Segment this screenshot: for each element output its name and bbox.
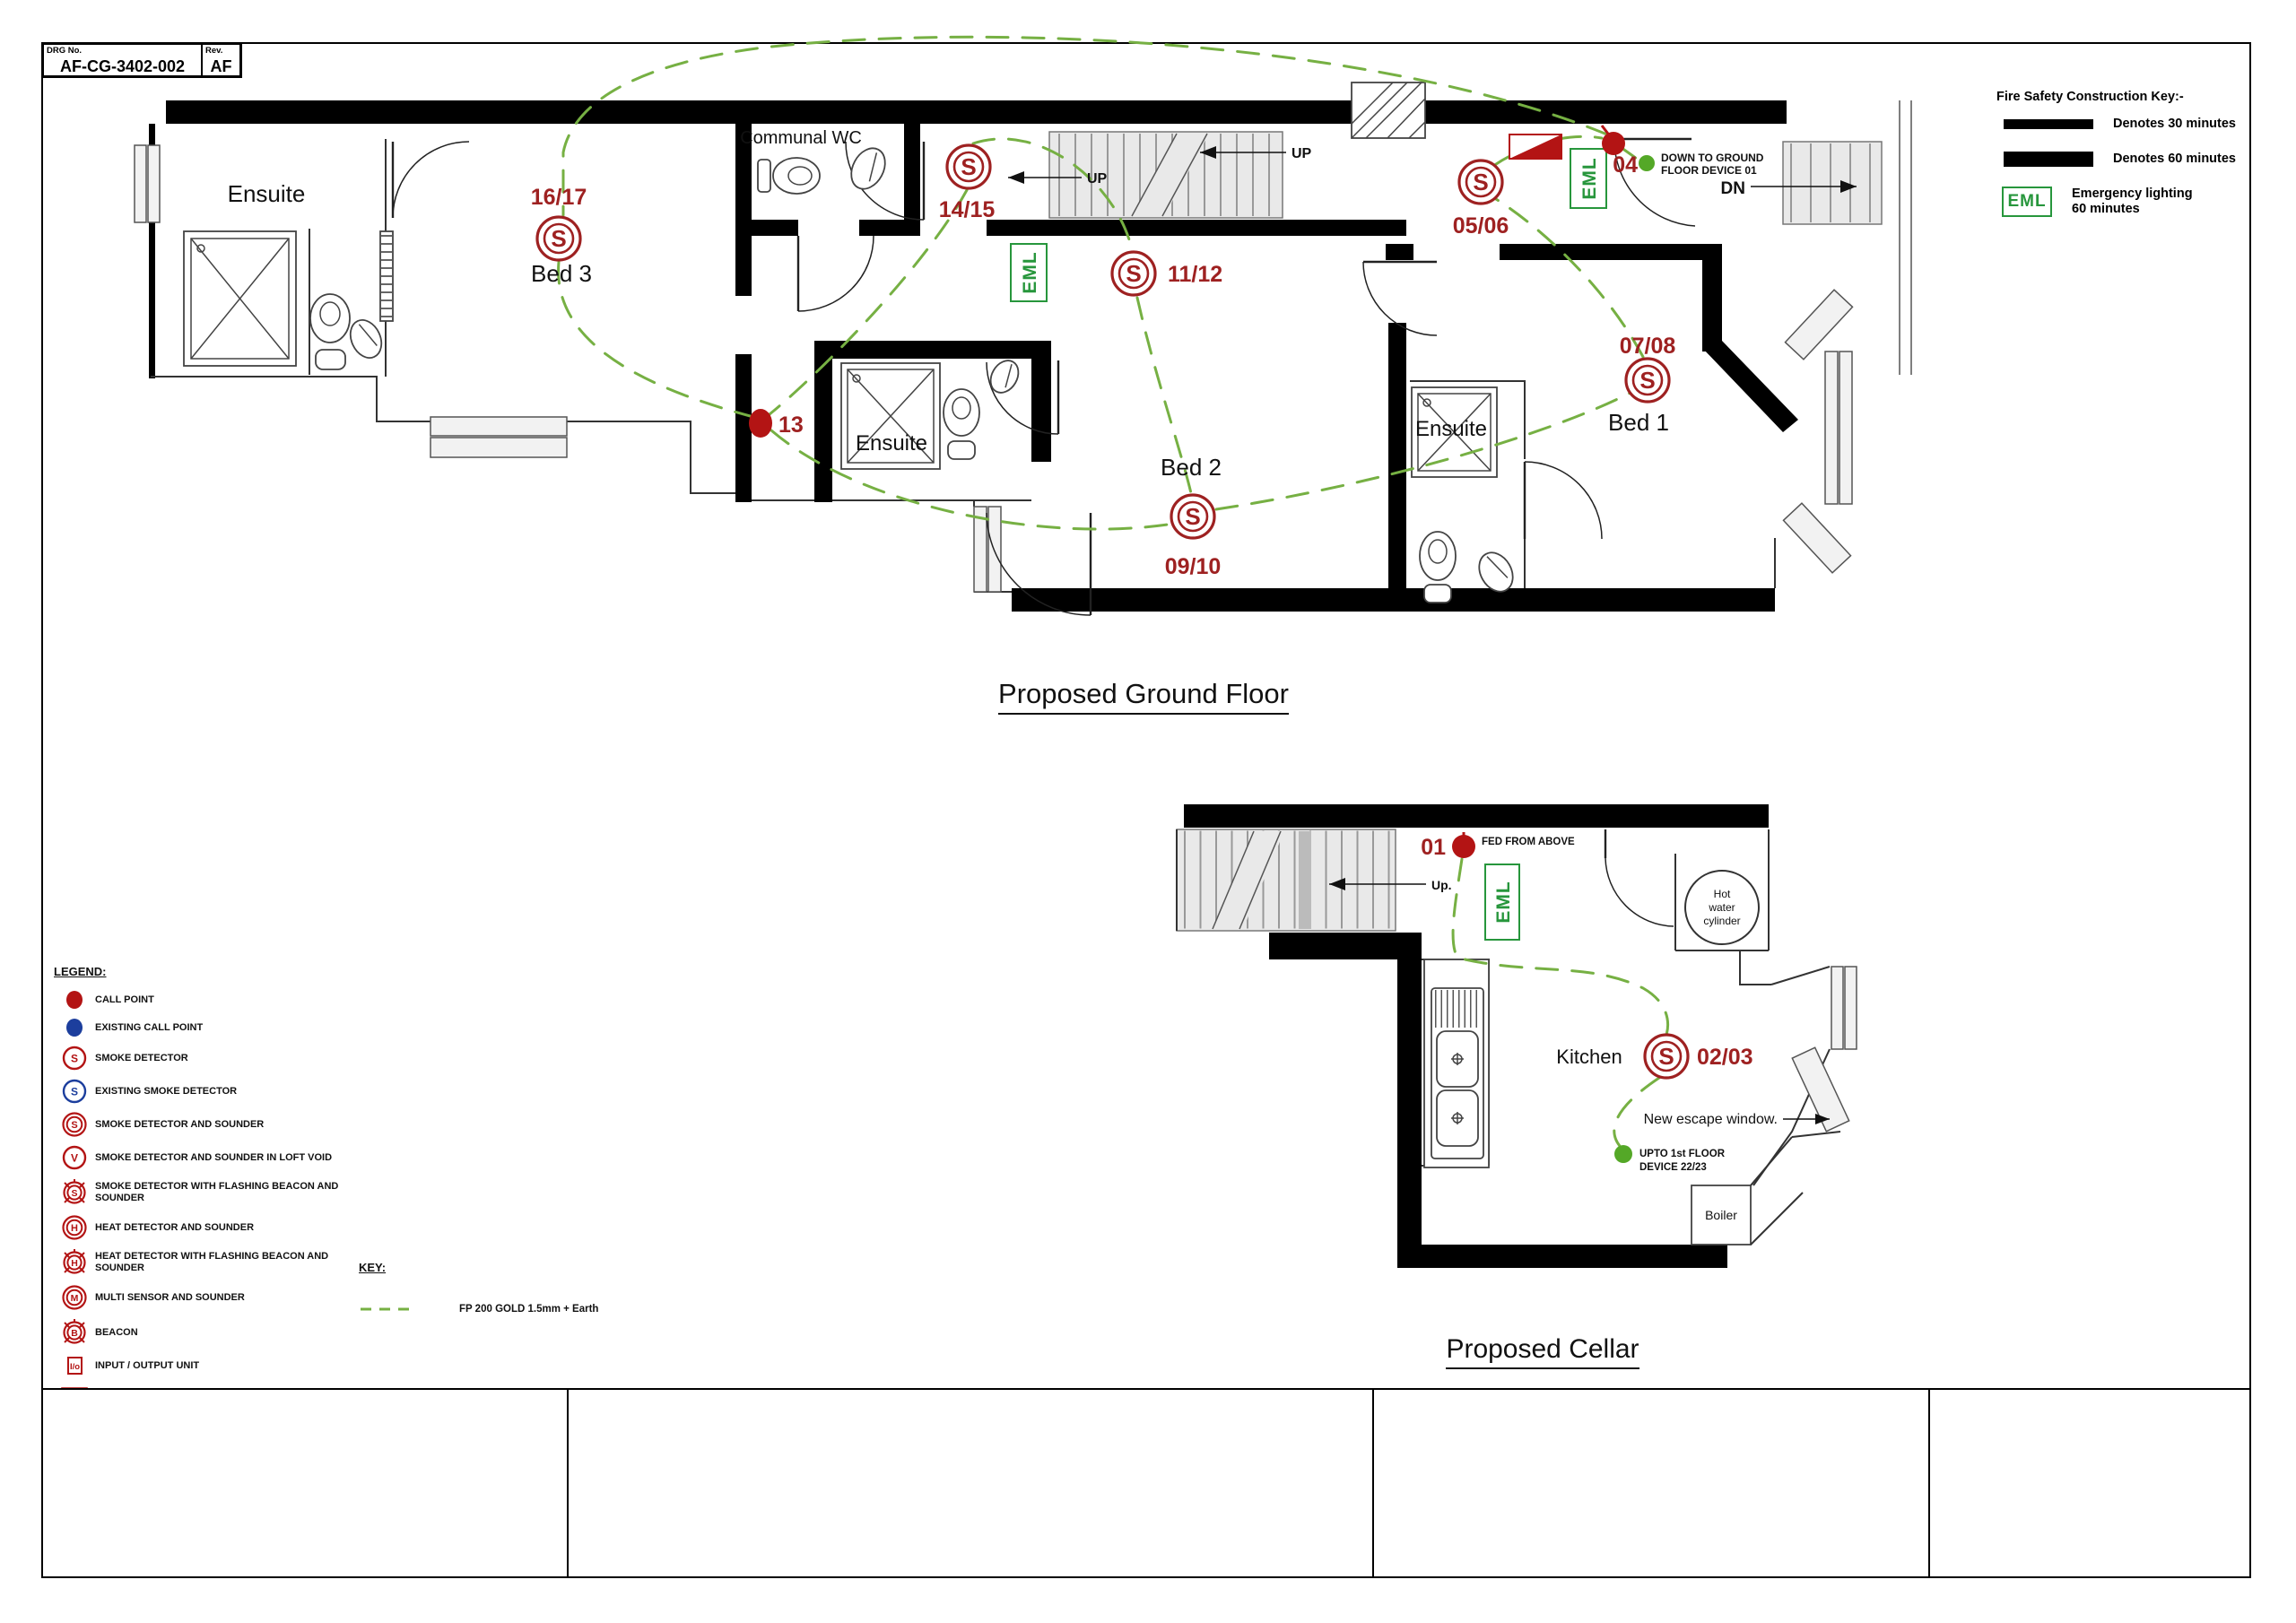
smoke-detector-sounder-icon: S [54, 1111, 95, 1138]
basin-communal-wc [845, 143, 892, 195]
svg-text:S: S [71, 1188, 77, 1199]
basin-ensuite-tl [344, 315, 387, 362]
cellar-bay-window [1792, 967, 1857, 1132]
cable-dash-icon [359, 1301, 414, 1317]
label-02-03: 02/03 [1697, 1045, 1753, 1070]
hot-water-line1: Hot [1714, 888, 1731, 900]
eml-sign-hall-text: EML [1020, 251, 1040, 293]
hot-water-line2: water [1708, 901, 1735, 914]
smoke-detector-02-03: S [1645, 1035, 1688, 1078]
room-bed3: Bed 3 [531, 260, 592, 287]
legend-row: CALL POINT [54, 989, 377, 1011]
legend-row: H HEAT DETECTOR AND SOUNDER [54, 1214, 377, 1241]
cellar-stairs [1177, 829, 1396, 931]
external-stairs-down [1783, 142, 1882, 224]
cable-key-row: FP 200 GOLD 1.5mm + Earth [359, 1301, 598, 1317]
up-text-2: UP [1291, 146, 1312, 161]
smoke-detector-07-08: S [1626, 359, 1669, 402]
svg-text:S: S [71, 1086, 78, 1098]
heat-detector-sounder-icon: H [54, 1214, 95, 1241]
toilet-ensuite-right [1420, 532, 1456, 603]
cellar-plan: Up. [1177, 804, 1857, 1268]
legend: LEGEND: CALL POINT EXISTING CALL POINT S… [54, 965, 377, 1439]
drawing-sheet: DRG No. AF-CG-3402-002 Rev. AF Fire Safe… [0, 0, 2296, 1623]
svg-text:S: S [1658, 1043, 1674, 1070]
cable-key-heading: KEY: [359, 1261, 598, 1274]
riser-dot-upto-first-floor [1614, 1145, 1632, 1163]
legend-row: S EXISTING SMOKE DETECTOR [54, 1078, 377, 1105]
down-note-line1: DOWN TO GROUND [1661, 152, 1764, 164]
call-point-04 [1602, 126, 1625, 155]
dn-text: DN [1721, 179, 1745, 198]
window-bed3 [430, 417, 567, 457]
title-block [41, 1388, 2251, 1578]
svg-text:H: H [71, 1223, 78, 1234]
kitchen-sink-unit [1424, 959, 1489, 1167]
legend-row: S SMOKE DETECTOR [54, 1045, 377, 1072]
title-block-divider [1372, 1390, 1374, 1576]
cable-key-label: FP 200 GOLD 1.5mm + Earth [459, 1304, 598, 1315]
legend-row: S SMOKE DETECTOR AND SOUNDER [54, 1111, 377, 1138]
riser-dot-down-to-ground [1639, 155, 1655, 171]
svg-text:S: S [1126, 260, 1141, 287]
room-bed2: Bed 2 [1161, 454, 1222, 481]
legend-row: B BEACON [54, 1317, 377, 1348]
upto-note-line1: UPTO 1st FLOOR [1639, 1149, 1726, 1159]
escape-window-text: New escape window. [1644, 1112, 1778, 1127]
label-07-08: 07/08 [1620, 334, 1676, 359]
legend-row: I/o INPUT / OUTPUT UNIT [54, 1354, 377, 1377]
room-ensuite-tl: Ensuite [228, 180, 306, 207]
title-block-divider [567, 1390, 569, 1576]
eml-sign-cellar: EML [1485, 864, 1519, 940]
label-05-06: 05/06 [1453, 213, 1509, 239]
smoke-detector-flashing-icon: S [54, 1177, 95, 1208]
bay-window-right [1783, 290, 1852, 573]
eml-sign-hall: EML [1011, 244, 1047, 301]
label-01: 01 [1421, 835, 1446, 860]
label-13: 13 [778, 412, 804, 438]
eml-sign-corridor-text: EML [1579, 157, 1600, 199]
heat-detector-flashing-icon: H [54, 1247, 95, 1278]
basin-ensuite-mid [985, 356, 1023, 398]
toilet-ensuite-tl [310, 294, 350, 369]
legend-row: M MULTI SENSOR AND SOUNDER [54, 1284, 377, 1311]
toilet-communal-wc [758, 158, 820, 194]
label-11-12: 11/12 [1168, 262, 1222, 287]
svg-text:S: S [1185, 503, 1200, 530]
eml-sign-cellar-text: EML [1493, 881, 1514, 923]
svg-text:S: S [961, 153, 976, 180]
call-point-13 [749, 409, 772, 438]
existing-call-point-icon [54, 1017, 95, 1038]
multi-sensor-icon: M [54, 1284, 95, 1311]
legend-row: H HEAT DETECTOR WITH FLASHING BEACON AND… [54, 1247, 377, 1278]
existing-smoke-detector-icon: S [54, 1078, 95, 1105]
stair-hatch-block [1352, 82, 1425, 138]
room-boiler: Boiler [1705, 1208, 1737, 1222]
toilet-ensuite-mid [944, 389, 979, 459]
room-ensuite-right: Ensuite [1415, 417, 1487, 441]
smoke-detector-09-10: S [1171, 495, 1214, 538]
eml-sign-corridor: EML [1570, 149, 1606, 208]
cable-key: KEY: FP 200 GOLD 1.5mm + Earth [359, 1261, 598, 1317]
smoke-detector-05-06: S [1459, 161, 1502, 204]
label-04: 04 [1613, 152, 1638, 178]
smoke-detector-16-17: S [537, 217, 580, 260]
smoke-detector-11-12: S [1112, 252, 1155, 295]
fed-from-above: FED FROM ABOVE [1482, 837, 1575, 847]
upto-note-line2: DEVICE 22/23 [1639, 1162, 1707, 1173]
room-kitchen: Kitchen [1556, 1046, 1622, 1068]
svg-text:S: S [1473, 169, 1488, 195]
room-bed1: Bed 1 [1608, 409, 1669, 436]
room-ensuite-mid: Ensuite [856, 431, 927, 456]
label-14-15: 14/15 [939, 197, 996, 222]
legend-row: S SMOKE DETECTOR WITH FLASHING BEACON AN… [54, 1177, 377, 1208]
legend-heading: LEGEND: [54, 965, 377, 978]
cellar-up-text: Up. [1431, 878, 1452, 892]
escape-window-note: New escape window. [1644, 1112, 1830, 1127]
fire-alarm-control-panel-icon [1509, 135, 1561, 159]
svg-text:S: S [551, 225, 566, 252]
call-point-01 [1452, 835, 1475, 858]
hot-water-cylinder: Hot water cylinder [1685, 871, 1759, 944]
ground-floor-plan: EML EML S S S S [135, 37, 1911, 615]
smoke-detector-14-15: S [947, 145, 990, 188]
legend-row: EXISTING CALL POINT [54, 1017, 377, 1038]
shower-ensuite-tl [184, 231, 296, 366]
room-communal-wc: Communal WC [740, 128, 862, 148]
down-note-line2: FLOOR DEVICE 01 [1661, 164, 1757, 177]
title-block-divider [1928, 1390, 1930, 1576]
up-text-1: UP [1087, 171, 1108, 187]
smoke-detector-icon: S [54, 1045, 95, 1072]
svg-text:S: S [1639, 367, 1655, 394]
cellar-title: Proposed Cellar [1408, 1334, 1677, 1369]
svg-text:M: M [71, 1293, 79, 1304]
label-09-10: 09/10 [1165, 554, 1222, 579]
ground-floor-title: Proposed Ground Floor [964, 678, 1323, 715]
svg-text:H: H [71, 1258, 78, 1269]
svg-text:V: V [71, 1152, 78, 1165]
beacon-icon: B [54, 1317, 95, 1348]
hot-water-line3: cylinder [1703, 915, 1740, 927]
svg-text:S: S [71, 1120, 77, 1131]
svg-text:S: S [71, 1053, 78, 1065]
legend-row: V SMOKE DETECTOR AND SOUNDER IN LOFT VOI… [54, 1144, 377, 1171]
call-point-icon [54, 989, 95, 1011]
io-unit-icon: I/o [54, 1354, 95, 1377]
svg-text:I/o: I/o [70, 1362, 80, 1372]
label-16-17: 16/17 [531, 185, 587, 210]
window-ensuite-left [135, 145, 160, 222]
svg-text:B: B [71, 1328, 78, 1339]
smoke-detector-loft-void-icon: V [54, 1144, 95, 1171]
